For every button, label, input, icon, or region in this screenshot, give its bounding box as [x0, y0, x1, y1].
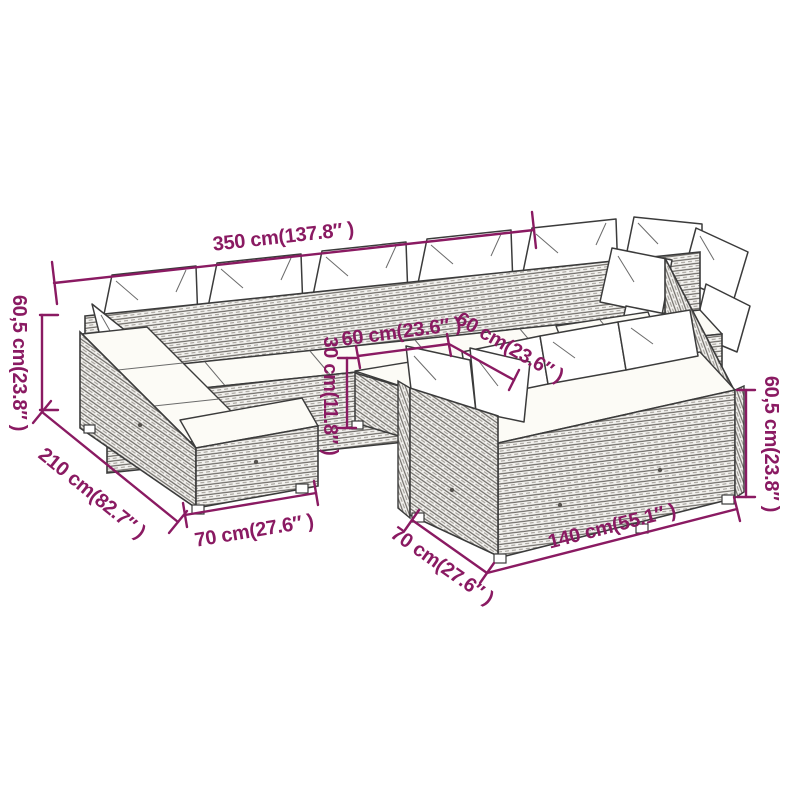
dim-left-height-label: 60,5 cm(23.8″ ): [8, 295, 30, 431]
dim-left-height: 60,5 cm(23.8″ ): [8, 295, 58, 431]
dim-table-height-label: 30 cm(11.8″ ): [319, 336, 341, 455]
dimension-drawing: 350 cm(137.8″ ) 60,5 cm(23.8″ ) 210 cm(8…: [0, 0, 800, 800]
dim-left-end-width-label: 70 cm(27.6″ ): [193, 510, 315, 552]
product-dimension-diagram: 350 cm(137.8″ ) 60,5 cm(23.8″ ) 210 cm(8…: [0, 0, 800, 800]
dim-right-height-label: 60,5 cm(23.8″ ): [760, 376, 782, 512]
